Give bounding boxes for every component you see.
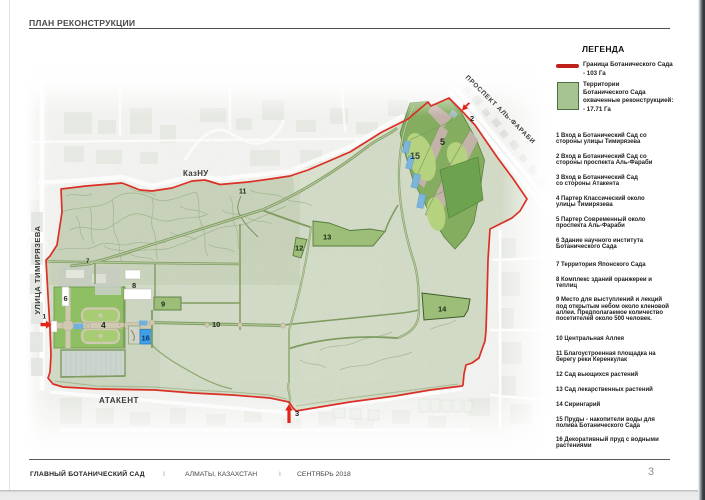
svg-text:8: 8 <box>132 281 136 290</box>
svg-text:6: 6 <box>64 294 68 303</box>
svg-text:15: 15 <box>410 151 420 161</box>
svg-text:2: 2 <box>470 114 474 123</box>
svg-text:КазНУ: КазНУ <box>183 169 208 178</box>
svg-text:14: 14 <box>438 305 447 314</box>
svg-text:3: 3 <box>295 409 299 418</box>
svg-text:11: 11 <box>239 189 247 196</box>
svg-text:АТАКЕНТ: АТАКЕНТ <box>99 396 139 405</box>
svg-text:13: 13 <box>323 233 331 242</box>
svg-text:16: 16 <box>142 334 150 343</box>
svg-text:5: 5 <box>440 137 445 147</box>
svg-text:10: 10 <box>212 320 220 329</box>
svg-text:9: 9 <box>161 300 165 309</box>
svg-text:12: 12 <box>295 244 303 253</box>
svg-text:4: 4 <box>101 320 106 330</box>
svg-text:УЛИЦА ТИМИРЯЗЕВА: УЛИЦА ТИМИРЯЗЕВА <box>33 225 42 314</box>
svg-text:1: 1 <box>43 314 47 321</box>
